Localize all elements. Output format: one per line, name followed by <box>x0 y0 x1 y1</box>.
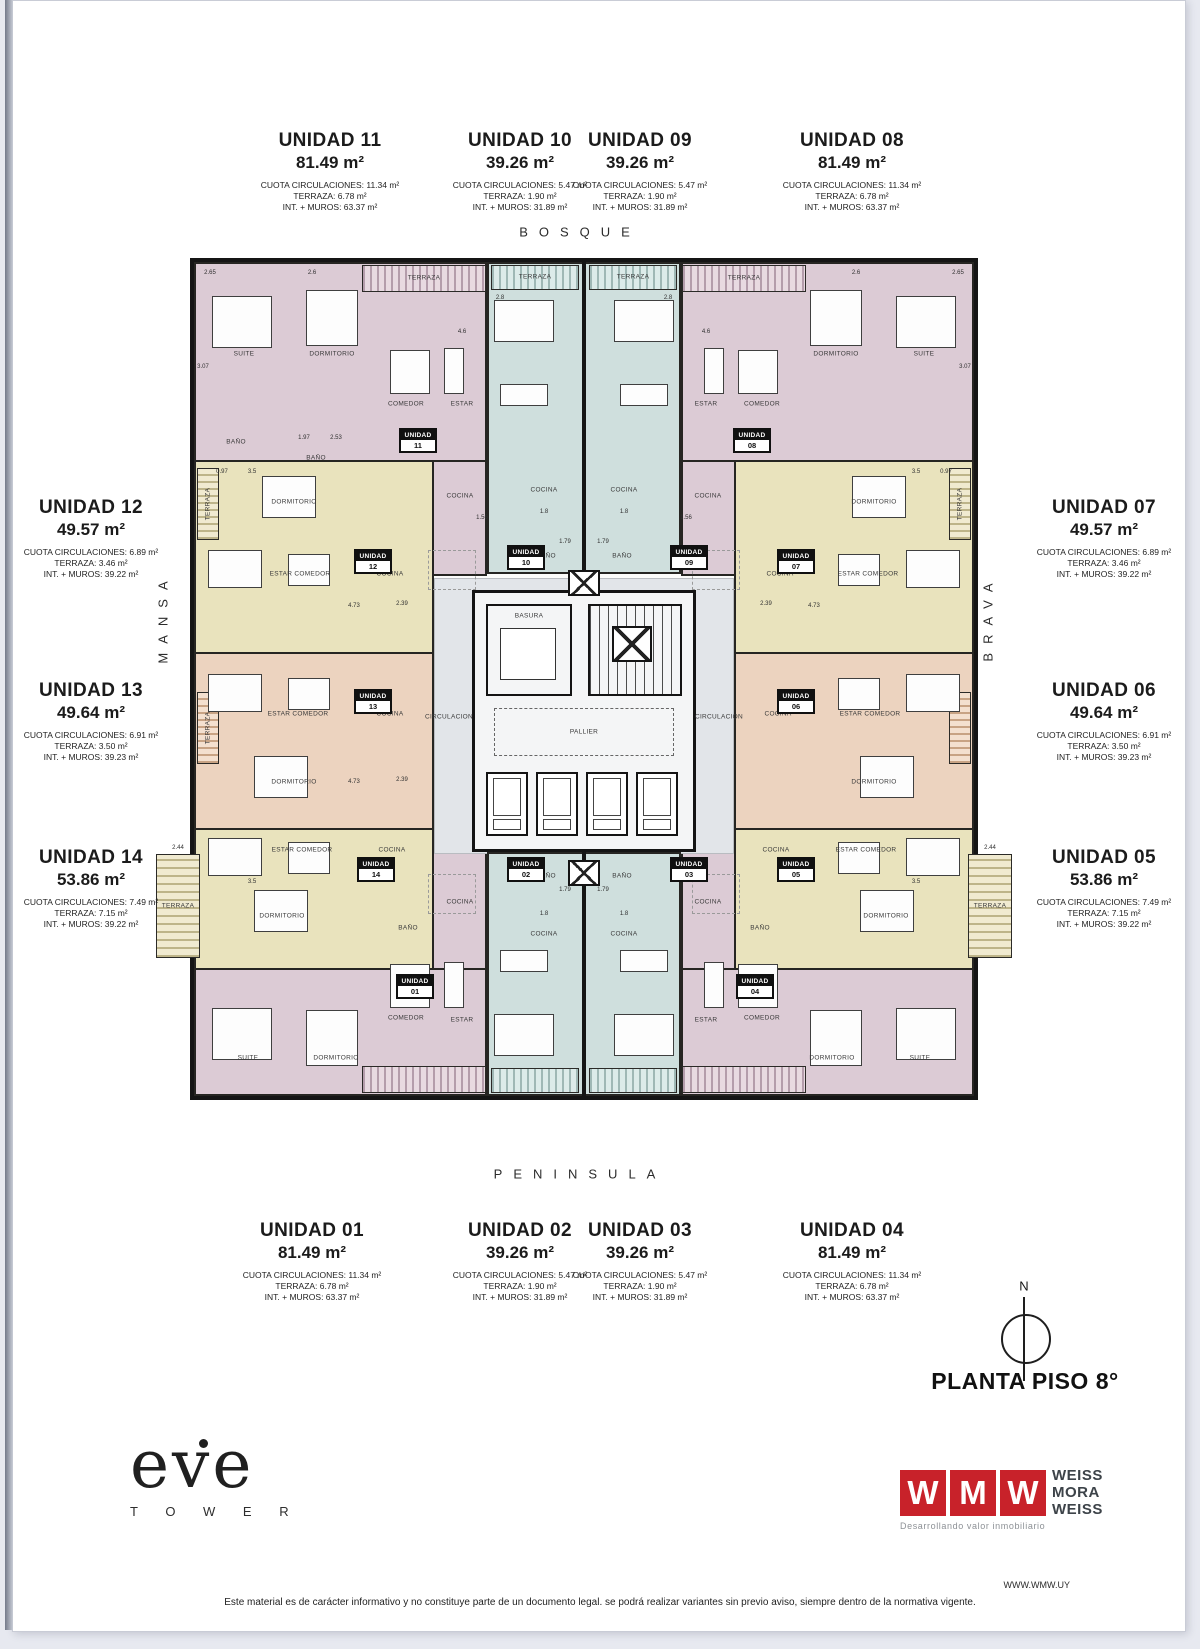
room-label-estar-comedor: ESTAR COMEDOR <box>272 847 333 854</box>
dim-label: 4.73 <box>348 603 360 609</box>
dim-label: 4.6 <box>702 329 710 335</box>
unit-tag-01: UNIDAD01 <box>396 974 434 999</box>
terraza-strip <box>589 1068 677 1093</box>
furniture-shape <box>212 1008 272 1060</box>
room-label-bano: BAÑO <box>612 873 632 880</box>
unit-tag-06: UNIDAD06 <box>777 689 815 714</box>
eve-logo-text: eve <box>130 1432 330 1498</box>
furniture-shape <box>860 890 914 932</box>
dim-label: 2.53 <box>330 435 342 441</box>
room-label-cocina: COCINA <box>610 931 637 938</box>
furniture-shape <box>444 348 464 394</box>
elevator <box>486 772 528 836</box>
wmw-logo-squares: W M W <box>900 1470 1046 1516</box>
dim-label: 4.73 <box>348 779 360 785</box>
dim-label: 3.5 <box>912 879 920 885</box>
furniture-shape <box>254 890 308 932</box>
furniture-shape <box>500 950 548 972</box>
dim-label: 2.6 <box>852 270 860 276</box>
room-label-bano: BAÑO <box>750 925 770 932</box>
unit-callout-04: UNIDAD 04 81.49 m² CUOTA CIRCULACIONES: … <box>737 1220 967 1303</box>
room-label-dormitorio: DORMITORIO <box>809 1055 854 1062</box>
elevator <box>586 772 628 836</box>
room-label-terraza: TERRAZA <box>408 275 440 282</box>
shaft <box>568 570 600 596</box>
plan-title: PLANTA PISO 8° <box>880 1368 1170 1395</box>
unit-tag-07: UNIDAD07 <box>777 549 815 574</box>
unit-callout-06: UNIDAD 06 49.64 m² CUOTA CIRCULACIONES: … <box>1015 680 1193 763</box>
unit-tag-03: UNIDAD03 <box>670 857 708 882</box>
unit-tag-04: UNIDAD04 <box>736 974 774 999</box>
room-label-bano: BAÑO <box>306 455 326 462</box>
room-label-bano: BAÑO <box>398 925 418 932</box>
elevator <box>536 772 578 836</box>
compass-north-label: N <box>1019 1279 1028 1294</box>
room-label-cocina: COCINA <box>530 487 557 494</box>
furniture-shape <box>620 950 668 972</box>
unit-callout-14: UNIDAD 14 53.86 m² CUOTA CIRCULACIONES: … <box>2 847 180 930</box>
street-mansa: MANSA <box>156 572 171 663</box>
room-label-dormitorio: DORMITORIO <box>851 779 896 786</box>
dim-label: 2.65 <box>952 270 964 276</box>
dim-label: 3.5 <box>248 469 256 475</box>
room-label-dormitorio: DORMITORIO <box>309 351 354 358</box>
furniture-shape <box>208 674 262 712</box>
room-label-dormitorio: DORMITORIO <box>271 779 316 786</box>
room-label-comedor: COMEDOR <box>744 1015 780 1022</box>
room-label-dormitorio: DORMITORIO <box>259 913 304 920</box>
dim-label: 2.8 <box>496 295 504 301</box>
floor-plan: UNIDAD11 UNIDAD08 UNIDAD12 UNIDAD07 UNID… <box>190 258 978 1100</box>
terraza-strip <box>682 1066 806 1093</box>
dim-label: 1.8 <box>540 509 548 515</box>
room-label-pallier: PALLIER <box>570 729 598 736</box>
street-peninsula: PENINSULA <box>494 1167 667 1182</box>
room-label-cocina: COCINA <box>694 899 721 906</box>
room-label-bano: BAÑO <box>612 553 632 560</box>
unit-callout-07: UNIDAD 07 49.57 m² CUOTA CIRCULACIONES: … <box>1015 497 1193 580</box>
room-label-dormitorio: DORMITORIO <box>313 1055 358 1062</box>
room-label-terraza: TERRAZA <box>205 712 212 744</box>
room-label-dormitorio: DORMITORIO <box>863 913 908 920</box>
unit-tag-11: UNIDAD11 <box>399 428 437 453</box>
room-label-cocina: COCINA <box>446 493 473 500</box>
legal-disclaimer: Este material es de carácter informativo… <box>100 1597 1100 1608</box>
room-label-estar: ESTAR <box>695 1017 718 1024</box>
room-label-cocina: COCINA <box>530 931 557 938</box>
furniture-shape <box>896 296 956 348</box>
room-label-suite: SUITE <box>910 1055 931 1062</box>
room-label-suite: SUITE <box>238 1055 259 1062</box>
room-label-suite: SUITE <box>234 351 255 358</box>
dim-label: 3.07 <box>197 364 209 370</box>
furniture-shape <box>614 300 674 342</box>
dim-label: 4.73 <box>808 603 820 609</box>
dim-label: 2.6 <box>308 270 316 276</box>
dim-label: 1.56 <box>476 515 488 521</box>
room-label-terraza: TERRAZA <box>957 488 964 520</box>
furniture-shape <box>254 756 308 798</box>
elevator-bank <box>486 772 682 838</box>
dim-label: 2.39 <box>760 601 772 607</box>
terraza-strip <box>362 1066 486 1093</box>
shaft <box>568 860 600 886</box>
unit-tag-08: UNIDAD08 <box>733 428 771 453</box>
room-label-comedor: COMEDOR <box>744 401 780 408</box>
unit-callout-01: UNIDAD 01 81.49 m² CUOTA CIRCULACIONES: … <box>197 1220 427 1303</box>
room-label-estar-comedor: ESTAR COMEDOR <box>270 571 331 578</box>
furniture-shape <box>494 1014 554 1056</box>
furniture-shape <box>288 678 330 710</box>
room-label-estar: ESTAR <box>695 401 718 408</box>
furniture-shape <box>860 756 914 798</box>
unit-tag-05: UNIDAD05 <box>777 857 815 882</box>
room-label-estar: ESTAR <box>451 401 474 408</box>
room-label-estar-comedor: ESTAR COMEDOR <box>840 711 901 718</box>
street-brava: BRAVA <box>981 574 996 661</box>
unit-tag-13: UNIDAD13 <box>354 689 392 714</box>
wmw-letter-m: M <box>950 1470 996 1516</box>
dim-label: 3.5 <box>912 469 920 475</box>
furniture-shape <box>306 290 358 346</box>
dim-label: 3.5 <box>248 879 256 885</box>
unit-callout-05: UNIDAD 05 53.86 m² CUOTA CIRCULACIONES: … <box>1015 847 1193 930</box>
furniture-shape <box>212 296 272 348</box>
eve-logo-dot <box>199 1439 208 1448</box>
furniture-shape <box>738 350 778 394</box>
wmw-letter-w: W <box>900 1470 946 1516</box>
compass-icon <box>1001 1314 1051 1364</box>
room-label-cocina: COCINA <box>694 493 721 500</box>
dim-label: 1.79 <box>559 539 571 545</box>
wmw-tagline: Desarrollando valor inmobiliario <box>900 1521 1046 1531</box>
room-label-terraza: TERRAZA <box>205 488 212 520</box>
scan-edge-shadow <box>5 0 13 1630</box>
party-wall <box>582 852 586 1096</box>
room-label-bano: BAÑO <box>226 439 246 446</box>
room-label-dormitorio: DORMITORIO <box>271 499 316 506</box>
dashed-patio <box>428 874 476 914</box>
wmw-company-name: WEISS MORA WEISS <box>1052 1467 1103 1518</box>
dim-label: 3.07 <box>959 364 971 370</box>
furniture-shape <box>444 962 464 1008</box>
unit-tag-02: UNIDAD02 <box>507 857 545 882</box>
unit-callout-13: UNIDAD 13 49.64 m² CUOTA CIRCULACIONES: … <box>2 680 180 763</box>
unit-tag-12: UNIDAD12 <box>354 549 392 574</box>
service-elevator <box>500 628 556 680</box>
room-label-estar-comedor: ESTAR COMEDOR <box>838 571 899 578</box>
unit-area: 81.49 m² <box>215 153 445 173</box>
dim-label: 1.56 <box>680 515 692 521</box>
unit-callout-09: UNIDAD 09 39.26 m² CUOTA CIRCULACIONES: … <box>540 130 740 213</box>
street-bosque: BOSQUE <box>519 225 641 240</box>
website-url: WWW.WMW.UY <box>880 1580 1070 1590</box>
room-label-terraza: TERRAZA <box>728 275 760 282</box>
room-label-terraza: TERRAZA <box>519 274 551 281</box>
room-label-cocina: COCINA <box>762 847 789 854</box>
dim-label: 2.65 <box>204 270 216 276</box>
dim-label: 1.8 <box>620 509 628 515</box>
furniture-shape <box>838 678 880 710</box>
furniture-shape <box>906 550 960 588</box>
unit-name: UNIDAD 11 <box>215 130 445 152</box>
furniture-shape <box>390 350 430 394</box>
room-label-estar-comedor: ESTAR COMEDOR <box>268 711 329 718</box>
room-label-terraza: TERRAZA <box>617 274 649 281</box>
dim-label: 4.6 <box>458 329 466 335</box>
shaft <box>612 626 652 662</box>
furniture-shape <box>906 674 960 712</box>
unit-tag-10: UNIDAD10 <box>507 545 545 570</box>
furniture-shape <box>494 300 554 342</box>
room-label-suite: SUITE <box>914 351 935 358</box>
dim-label: 1.97 <box>298 435 310 441</box>
dashed-patio <box>428 550 476 590</box>
dim-label: 0.97 <box>216 469 228 475</box>
furniture-shape <box>614 1014 674 1056</box>
dim-label: 1.8 <box>620 911 628 917</box>
dim-label: 0.97 <box>940 469 952 475</box>
unit-tag-14: UNIDAD14 <box>357 857 395 882</box>
furniture-shape <box>810 290 862 346</box>
dim-label: 2.44 <box>984 845 996 851</box>
furniture-shape <box>704 962 724 1008</box>
room-label-terraza: TERRAZA <box>974 903 1006 910</box>
unit-callout-08: UNIDAD 08 81.49 m² CUOTA CIRCULACIONES: … <box>737 130 967 213</box>
furniture-shape <box>896 1008 956 1060</box>
furniture-shape <box>620 384 668 406</box>
terraza-strip <box>491 1068 579 1093</box>
wmw-logo: W M W WEISS MORA WEISS Desarrollando val… <box>900 1470 1046 1531</box>
dim-label: 2.39 <box>396 777 408 783</box>
eve-tower-logo: eve T O W E R <box>130 1432 330 1519</box>
dim-label: 1.79 <box>597 887 609 893</box>
room-label-circulacion: CIRCULACION <box>695 714 743 721</box>
room-label-cocina: COCINA <box>378 847 405 854</box>
compass-needle <box>1023 1297 1025 1381</box>
furniture-shape <box>852 476 906 518</box>
furniture-shape <box>704 348 724 394</box>
furniture-shape <box>208 838 262 876</box>
room-label-dormitorio: DORMITORIO <box>851 499 896 506</box>
room-label-estar: ESTAR <box>451 1017 474 1024</box>
eve-logo-subtitle: T O W E R <box>130 1504 330 1519</box>
room-label-estar-comedor: ESTAR COMEDOR <box>836 847 897 854</box>
unit-tag-09: UNIDAD09 <box>670 545 708 570</box>
room-label-dormitorio: DORMITORIO <box>813 351 858 358</box>
room-label-comedor: COMEDOR <box>388 1015 424 1022</box>
elevator <box>636 772 678 836</box>
room-label-comedor: COMEDOR <box>388 401 424 408</box>
room-label-cocina: COCINA <box>446 899 473 906</box>
unit-callout-11: UNIDAD 11 81.49 m² CUOTA CIRCULACIONES: … <box>215 130 445 213</box>
room-label-cocina: COCINA <box>610 487 637 494</box>
furniture-shape <box>208 550 262 588</box>
wmw-letter-w: W <box>1000 1470 1046 1516</box>
dim-label: 1.8 <box>540 911 548 917</box>
unit-callout-12: UNIDAD 12 49.57 m² CUOTA CIRCULACIONES: … <box>2 497 180 580</box>
dim-label: 2.39 <box>396 601 408 607</box>
room-label-basura: BASURA <box>515 613 544 620</box>
dim-label: 1.79 <box>597 539 609 545</box>
party-wall <box>582 262 586 574</box>
floorplan-sheet: { "units": [ {"name":"UNIDAD 01","area":… <box>0 0 1200 1649</box>
dim-label: 2.8 <box>664 295 672 301</box>
furniture-shape <box>262 476 316 518</box>
unit-callout-03: UNIDAD 03 39.26 m² CUOTA CIRCULACIONES: … <box>540 1220 740 1303</box>
room-label-circulacion: CIRCULACION <box>425 714 473 721</box>
dim-label: 1.79 <box>559 887 571 893</box>
furniture-shape <box>906 838 960 876</box>
furniture-shape <box>500 384 548 406</box>
